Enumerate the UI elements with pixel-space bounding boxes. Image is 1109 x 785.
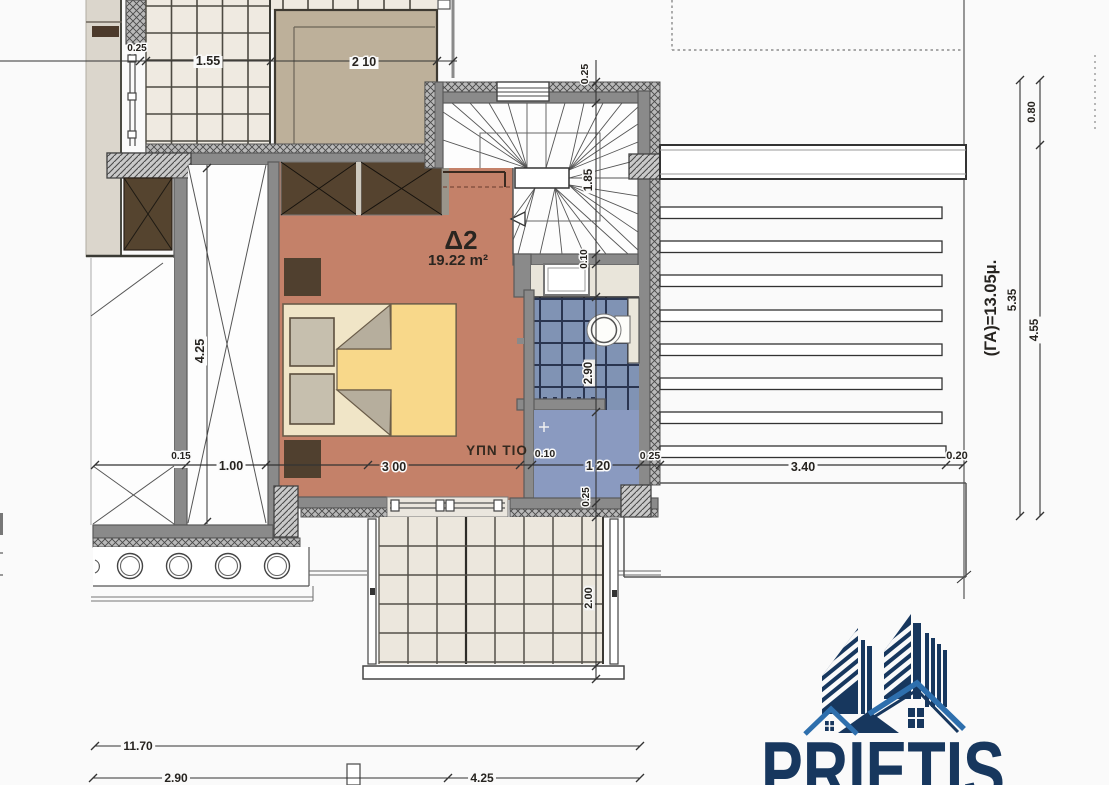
svg-text:0.25: 0.25 <box>127 43 147 54</box>
svg-text:2.90: 2.90 <box>583 362 595 384</box>
svg-text:1.00: 1.00 <box>219 459 243 473</box>
svg-text:2 10: 2 10 <box>352 55 376 69</box>
svg-text:3 00: 3 00 <box>382 460 406 474</box>
svg-text:0.10: 0.10 <box>579 249 590 269</box>
svg-text:2.00: 2.00 <box>583 587 595 608</box>
svg-text:4.25: 4.25 <box>470 771 494 785</box>
svg-text:1.55: 1.55 <box>196 54 220 68</box>
svg-text:PRIETIS: PRIETIS <box>761 724 1005 785</box>
svg-text:1 20: 1 20 <box>586 459 610 473</box>
svg-text:0.10: 0.10 <box>535 448 556 460</box>
svg-text:(ΓΑ)=13.05μ.: (ΓΑ)=13.05μ. <box>982 260 1000 357</box>
svg-text:Δ2: Δ2 <box>444 225 477 255</box>
svg-text:ΥΠΝ ΤΙΟ: ΥΠΝ ΤΙΟ <box>466 443 528 458</box>
svg-text:1.85: 1.85 <box>583 168 595 191</box>
svg-text:0.15: 0.15 <box>171 451 191 462</box>
svg-text:2.90: 2.90 <box>164 771 188 785</box>
svg-text:0 25: 0 25 <box>640 450 661 462</box>
svg-text:3.40: 3.40 <box>791 460 815 474</box>
svg-text:0.25: 0.25 <box>581 487 592 507</box>
svg-text:5.35: 5.35 <box>1007 288 1019 311</box>
svg-text:0.20: 0.20 <box>946 450 967 462</box>
svg-text:19.22 m²: 19.22 m² <box>428 252 488 269</box>
svg-text:0.25: 0.25 <box>579 64 591 85</box>
svg-text:11.70: 11.70 <box>123 739 153 753</box>
svg-text:4.25: 4.25 <box>193 339 207 363</box>
svg-text:4.55: 4.55 <box>1029 318 1041 341</box>
svg-text:0.80: 0.80 <box>1026 101 1038 122</box>
